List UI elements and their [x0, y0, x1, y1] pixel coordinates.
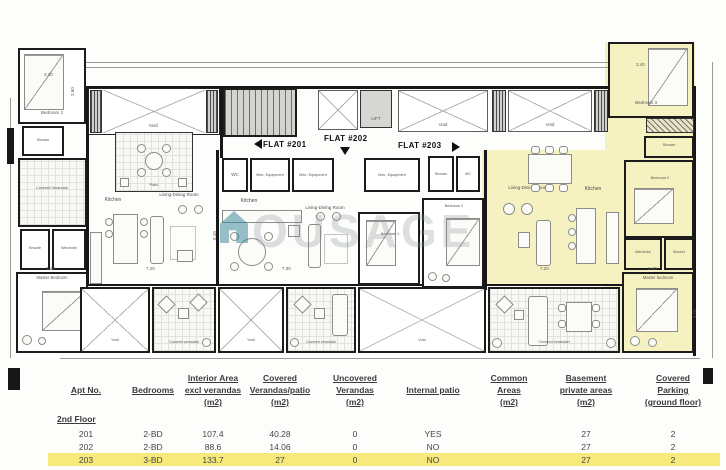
covered-verandah-1-label: Covered verandah	[156, 340, 212, 344]
plant	[178, 205, 187, 214]
dim-340-b: 3.40	[46, 266, 55, 271]
watermark-text: OUSAGE	[252, 204, 475, 258]
col-header-basement: Basement private areas (m2)	[546, 373, 626, 409]
flat-203-arrow-icon	[452, 142, 465, 152]
dim-140-a: 1.40	[648, 266, 657, 271]
void-a-label: Void	[428, 122, 458, 127]
dim-340-c: 3.40	[636, 62, 645, 67]
side-table	[178, 308, 189, 319]
bed	[636, 288, 678, 332]
col-header-apt: Apt No.	[48, 373, 124, 409]
yard-label: Yard	[138, 123, 168, 128]
bedroom2-203-label: Bedroom 2	[634, 176, 686, 180]
sofa	[528, 296, 548, 346]
void-3-label: Void	[407, 338, 437, 342]
living-201-label: Living-Dining Room	[147, 192, 211, 197]
lift-label: LIFT	[361, 116, 391, 121]
corner-mark-left	[8, 368, 20, 390]
coffee-table	[518, 232, 530, 248]
dining-table	[566, 302, 592, 332]
bedroom2-201-label: Bedroom 2	[22, 110, 82, 115]
room-void-3	[358, 287, 486, 353]
flat-201-label: FLAT #201	[263, 140, 306, 149]
patio-label: Patio	[140, 183, 168, 187]
dim-720-a: 7.20	[146, 266, 155, 271]
mec-3-label: Mec. Equipment	[364, 173, 420, 177]
hatch-strip-annex	[646, 118, 694, 133]
chair	[545, 146, 554, 154]
room-lift	[360, 90, 392, 128]
chair	[592, 304, 600, 312]
table-header-row: Apt No. Bedrooms Interior Area excl vera…	[48, 373, 720, 409]
flat-202-label: FLAT #202	[324, 134, 367, 143]
dim-720-b: 7.20	[540, 266, 549, 271]
stool	[105, 218, 113, 226]
pouf	[648, 338, 657, 347]
pouf	[428, 272, 437, 281]
kitchen-203-label: Kitchen	[576, 187, 610, 193]
dining-table	[528, 154, 572, 184]
col-header-common: Common Areas (m2)	[472, 373, 546, 409]
flat-203-label: FLAT #203	[398, 141, 441, 150]
kitchen-201-label: Kitchen	[96, 198, 130, 204]
col-header-covered-verandas: Covered Verandas/patio (m2)	[244, 373, 316, 409]
stool	[140, 230, 148, 238]
kitchen-island	[113, 214, 138, 264]
wall-divider-201-202	[216, 150, 219, 286]
room-void-2	[218, 287, 284, 353]
yard-louver-right	[206, 90, 218, 133]
void-1-label: Void	[100, 338, 130, 342]
top-edge-line-2	[86, 67, 688, 68]
pouf	[630, 336, 640, 346]
plant	[194, 205, 203, 214]
chair	[559, 184, 568, 192]
covered-verandah-3-label: Covered verandah	[524, 340, 584, 344]
dim-340-a: 3.40	[44, 72, 53, 77]
shower-201-label: Shower	[22, 138, 64, 142]
stool	[568, 242, 576, 250]
armchair	[503, 203, 515, 215]
room-void-1	[80, 287, 150, 353]
flat-202-arrow-icon	[340, 147, 350, 160]
chair	[137, 168, 146, 177]
stairwell	[223, 88, 297, 137]
side-table	[514, 310, 524, 320]
master-201-label: Master Bedroom	[18, 276, 86, 281]
kitchen-counter	[90, 232, 102, 284]
wc-201-label: WC	[222, 172, 248, 177]
wc-203-label: WC	[456, 172, 480, 176]
pouf	[442, 274, 450, 282]
louver-right	[594, 90, 608, 132]
void-2-label: Void	[236, 338, 266, 342]
bottom-edge-line	[60, 358, 700, 359]
right-edge-line	[712, 62, 713, 358]
sofa	[536, 220, 551, 266]
covered-verandah-201-label: Covered Verandah	[22, 186, 82, 190]
void-b-label: Void	[535, 122, 565, 127]
mec-1-label: Mec. Equipment	[250, 173, 290, 177]
table-section-2nd-floor: 2nd Floor	[48, 414, 720, 427]
floor-plan: Yard LIFT Void Void FLAT #201 FLAT #202 …	[0, 0, 726, 366]
pouf	[22, 335, 32, 345]
chair	[162, 168, 171, 177]
planter	[120, 178, 129, 187]
kitchen-island	[576, 208, 596, 264]
chair	[531, 146, 540, 154]
yard-louver-left	[90, 90, 102, 133]
room-void-small	[318, 90, 358, 130]
covered-verandah-2-label: Covered verandah	[292, 340, 350, 344]
stool	[140, 218, 148, 226]
master-203-label: Master bedroom	[624, 276, 692, 281]
col-header-bedrooms: Bedrooms	[124, 373, 182, 409]
planter	[606, 338, 616, 348]
kitchen-counter	[606, 212, 619, 264]
bed	[648, 48, 688, 106]
wardrobe-203-label: Wardrobe	[624, 250, 662, 254]
chair	[559, 146, 568, 154]
chair	[531, 184, 540, 192]
louver-mid	[492, 90, 506, 132]
chair	[264, 262, 273, 271]
shower-annex-label: Shower	[644, 143, 694, 147]
table-row-203-highlighted: 2033-BD 133.727 0NO 27 2	[48, 453, 720, 466]
pouf	[38, 337, 46, 345]
col-header-internal-patio: Internal patio	[394, 373, 472, 409]
round-table	[145, 152, 163, 170]
col-header-parking: Covered Parking (ground floor)	[626, 373, 720, 409]
col-header-interior: Interior Area excl verandas (m2)	[182, 373, 244, 409]
chair	[230, 262, 239, 271]
bedroom3-203-label: Bedroom 3	[616, 100, 676, 105]
stool	[568, 214, 576, 222]
left-wall-segment	[7, 128, 14, 164]
chair	[558, 304, 566, 312]
sofa	[150, 216, 164, 264]
wall-divider-202-203	[484, 150, 487, 290]
shower-203-label: Shower	[426, 172, 456, 176]
planter	[492, 338, 502, 348]
dim-470-a: 4.70	[692, 309, 697, 318]
chair	[592, 320, 600, 328]
table-row-202: 2022-BD 88.614.06 0NO 27 2	[48, 440, 720, 453]
bed	[24, 54, 64, 110]
side-table	[314, 308, 325, 319]
stool	[568, 228, 576, 236]
floorplan-listing-image: { "plan": { "flats": { "f201": "FLAT #20…	[0, 0, 726, 470]
flat-201-arrow-icon	[249, 139, 262, 149]
top-edge-line	[86, 62, 688, 63]
armchair	[521, 203, 533, 215]
dim-360-a: 3.60	[70, 87, 75, 96]
room-covered-verandah-201	[18, 158, 87, 227]
planter	[178, 178, 187, 187]
table-row-201: 2012-BD 107.440.28 0YES 27 2	[48, 427, 720, 440]
sofa	[332, 294, 348, 336]
dim-510-a: 5.10	[212, 231, 217, 240]
dim-730-a: 7.30	[282, 266, 291, 271]
ensuite-label: Ensuite	[18, 246, 52, 250]
chair	[137, 144, 146, 153]
coffee-table	[177, 250, 193, 262]
bed	[634, 188, 674, 224]
wardrobe-201-label: Wardrobe	[52, 246, 86, 250]
mec-2-label: Mec. Equipment	[292, 173, 334, 177]
shower2-203-label: Shower	[664, 250, 694, 254]
col-header-uncovered: Uncovered Verandas (m2)	[316, 373, 394, 409]
chair	[162, 144, 171, 153]
chair	[545, 184, 554, 192]
chair	[558, 320, 566, 328]
area-table: Apt No. Bedrooms Interior Area excl vera…	[48, 373, 720, 466]
stool	[105, 230, 113, 238]
